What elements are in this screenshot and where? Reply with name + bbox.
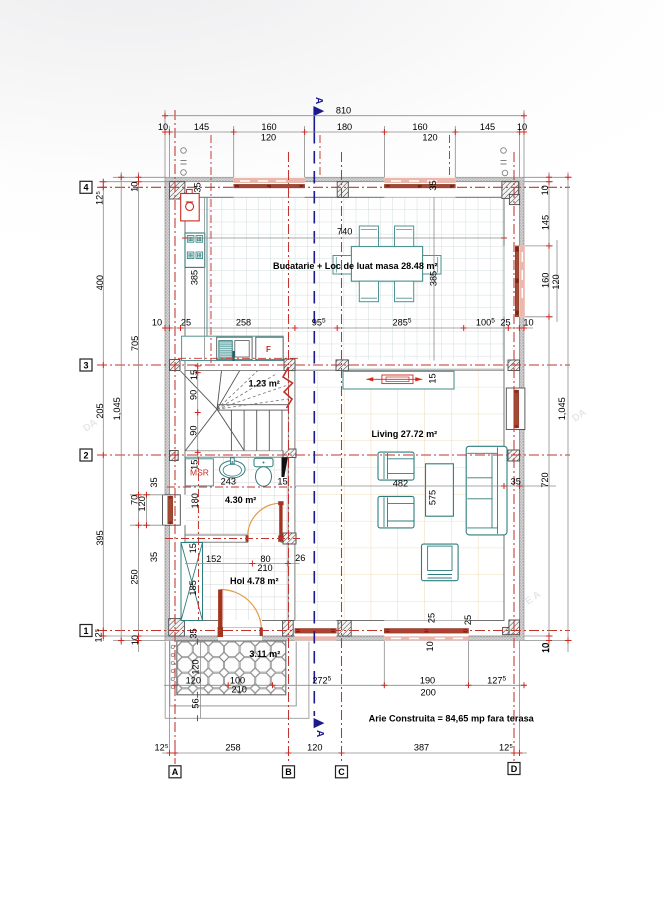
svg-text:10: 10: [517, 122, 527, 132]
svg-text:1: 1: [83, 626, 88, 636]
svg-text:210: 210: [232, 684, 247, 694]
svg-text:15: 15: [188, 543, 198, 553]
svg-text:385: 385: [429, 271, 439, 286]
svg-text:160: 160: [261, 122, 276, 132]
svg-text:205: 205: [95, 403, 105, 418]
svg-text:12⁵: 12⁵: [95, 191, 105, 205]
svg-text:35: 35: [193, 182, 203, 192]
svg-text:12⁵: 12⁵: [94, 628, 104, 642]
svg-text:145: 145: [194, 122, 209, 132]
svg-text:482: 482: [393, 478, 408, 488]
svg-text:35: 35: [511, 477, 521, 487]
svg-text:395: 395: [95, 530, 105, 545]
svg-text:Bucatarie + Loc de luat masa 2: Bucatarie + Loc de luat masa 28.48 m²: [273, 261, 438, 271]
svg-text:180: 180: [337, 122, 352, 132]
svg-text:575: 575: [427, 490, 437, 505]
svg-text:10: 10: [523, 317, 533, 327]
svg-text:35: 35: [149, 477, 159, 487]
svg-text:10: 10: [130, 635, 140, 645]
svg-text:Living 27.72 m²: Living 27.72 m²: [372, 429, 438, 439]
svg-text:90: 90: [189, 425, 199, 435]
svg-text:26: 26: [295, 553, 305, 563]
svg-text:4: 4: [83, 183, 88, 193]
svg-text:200: 200: [421, 687, 436, 697]
svg-text:258: 258: [236, 317, 251, 327]
svg-text:90: 90: [189, 390, 199, 400]
svg-text:120: 120: [551, 274, 561, 289]
svg-text:C: C: [338, 767, 345, 777]
svg-text:190: 190: [420, 675, 435, 685]
svg-text:1,045: 1,045: [112, 397, 122, 420]
svg-text:3.11 m²: 3.11 m²: [249, 649, 280, 659]
svg-text:25: 25: [426, 613, 436, 623]
svg-text:1,045: 1,045: [557, 397, 567, 420]
svg-text:12⁵: 12⁵: [154, 743, 168, 753]
svg-text:120: 120: [191, 659, 201, 674]
svg-text:12⁵: 12⁵: [499, 743, 513, 753]
svg-text:10: 10: [425, 641, 435, 651]
svg-text:243: 243: [221, 476, 236, 486]
svg-text:15: 15: [189, 370, 199, 380]
svg-text:120: 120: [307, 743, 322, 753]
svg-text:56: 56: [191, 698, 201, 708]
svg-text:210: 210: [257, 563, 272, 573]
svg-text:705: 705: [130, 336, 140, 351]
svg-text:B: B: [285, 767, 292, 777]
svg-text:120: 120: [137, 496, 147, 511]
svg-text:Arie Construita = 84,65 mp far: Arie Construita = 84,65 mp fara terasa: [369, 714, 535, 724]
svg-text:258: 258: [225, 743, 240, 753]
svg-text:120: 120: [422, 133, 437, 143]
svg-text:A: A: [172, 767, 179, 777]
svg-text:385: 385: [190, 270, 200, 285]
svg-text:387: 387: [414, 743, 429, 753]
svg-text:180: 180: [190, 493, 200, 508]
svg-text:145: 145: [541, 215, 551, 230]
svg-text:15: 15: [428, 373, 438, 383]
svg-text:25: 25: [500, 317, 510, 327]
svg-text:10: 10: [130, 182, 140, 192]
svg-text:250: 250: [129, 569, 139, 584]
svg-text:740: 740: [337, 227, 352, 237]
svg-text:120: 120: [186, 675, 201, 685]
svg-text:10: 10: [158, 122, 168, 132]
svg-text:F: F: [266, 345, 271, 354]
svg-text:25: 25: [463, 615, 473, 625]
svg-text:1.23 m²: 1.23 m²: [249, 379, 280, 389]
svg-text:15: 15: [277, 476, 287, 486]
svg-text:10: 10: [152, 317, 162, 327]
svg-text:25: 25: [181, 317, 191, 327]
svg-text:3: 3: [83, 360, 88, 370]
svg-text:10: 10: [540, 185, 550, 195]
svg-text:160: 160: [541, 273, 551, 288]
svg-text:35: 35: [149, 552, 159, 562]
svg-text:145: 145: [480, 122, 495, 132]
svg-text:810: 810: [336, 105, 351, 115]
svg-text:10: 10: [541, 643, 551, 653]
svg-text:15: 15: [190, 460, 200, 470]
svg-text:A: A: [313, 97, 324, 104]
svg-text:400: 400: [95, 275, 105, 290]
svg-text:120: 120: [261, 133, 276, 143]
svg-text:35: 35: [428, 180, 438, 190]
svg-text:720: 720: [540, 472, 550, 487]
svg-text:35: 35: [189, 628, 199, 638]
svg-text:185: 185: [188, 580, 198, 595]
svg-text:2: 2: [83, 450, 88, 460]
svg-text:4.30 m²: 4.30 m²: [225, 495, 256, 505]
svg-text:A: A: [314, 730, 325, 737]
svg-text:D: D: [511, 764, 518, 774]
svg-text:Hol 4.78 m²: Hol 4.78 m²: [230, 576, 279, 586]
svg-text:160: 160: [412, 122, 427, 132]
svg-text:152: 152: [206, 554, 221, 564]
